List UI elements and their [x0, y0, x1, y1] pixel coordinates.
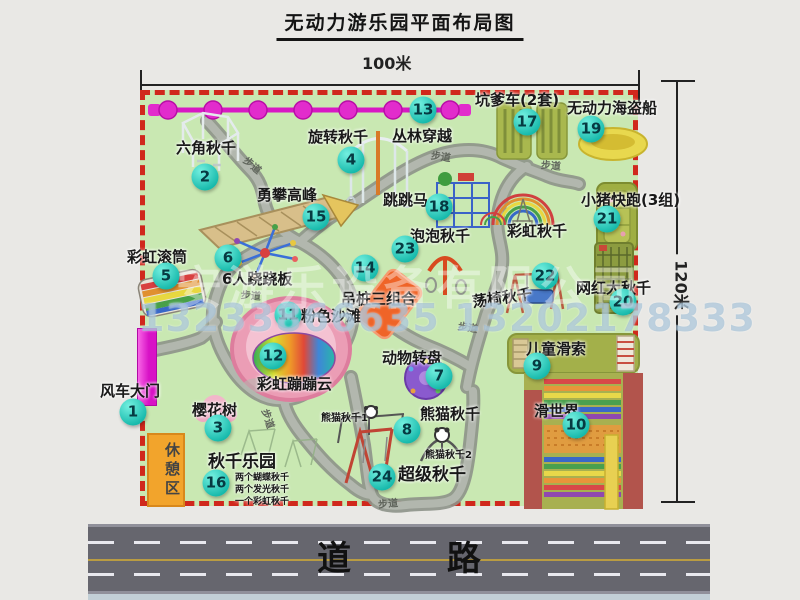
poi-label-16: 秋千乐园 [208, 447, 276, 472]
poi-label: 彩虹秋千 [507, 220, 567, 241]
poi-label-6: 6人跷跷板 [222, 268, 292, 289]
poi-badge-9: 9 [524, 353, 551, 380]
poi-badge-13: 13 [410, 97, 437, 124]
poi-label: 熊猫秋千2 [425, 446, 472, 461]
poi-badge-22: 22 [532, 263, 559, 290]
poi-badge-18: 18 [426, 194, 453, 221]
rest-area: 休憩区 [147, 433, 185, 507]
poi-label-8: 熊猫秋千 [420, 403, 480, 424]
poi-badge-5: 5 [153, 263, 180, 290]
poi-badge-15: 15 [303, 204, 330, 231]
poi-badge-4: 4 [338, 147, 365, 174]
poi-badge-10: 10 [563, 412, 590, 439]
poi-badge-16: 16 [203, 470, 230, 497]
bubble-swing-icon [426, 257, 466, 295]
poi-badge-14: 14 [352, 255, 379, 282]
poi-badge-7: 7 [426, 363, 453, 390]
poi-badge-23: 23 [392, 236, 419, 263]
poi-label-24: 超级秋千 [398, 460, 466, 485]
dimension-tick [661, 80, 695, 82]
footpath-label: 步道 [430, 147, 452, 165]
dimension-height-label: 120米 [671, 254, 695, 315]
poi-badge-2: 2 [192, 164, 219, 191]
poi-badge-11: 11 [275, 302, 302, 329]
poi-badge-19: 19 [578, 116, 605, 143]
footpath-label: 步道 [457, 317, 479, 335]
poi-label-12: 彩虹蹦蹦云 [257, 373, 332, 394]
poi-badge-17: 17 [514, 109, 541, 136]
poi-label-19: 无动力海盗船 [567, 97, 657, 118]
footpath-label: 步道 [377, 494, 398, 511]
footpath-label: 步道 [540, 156, 561, 173]
road: 道 路 [88, 524, 710, 594]
poi-badge-6: 6 [215, 245, 242, 272]
poi-label-15: 勇攀高峰 [257, 184, 317, 205]
poi-label-23: 泡泡秋千 [410, 225, 470, 246]
poi-badge-24: 24 [369, 464, 396, 491]
poi-label-17: 坑爹车(2套) [475, 89, 559, 110]
poi-label-2: 六角秋千 [176, 137, 236, 158]
park-map: 休憩区 1风车大门2六角秋千3樱花树4旋转秋千5彩虹滚筒66人跷跷板7动物转盘8… [140, 90, 638, 506]
poi-label-21: 小猪快跑(3组) [581, 189, 680, 210]
poi-badge-12: 12 [260, 343, 287, 370]
poi-label-4: 旋转秋千 [308, 126, 368, 147]
dimension-tick [661, 501, 695, 503]
dimension-width-label: 100米 [356, 50, 417, 74]
poi-label-13: 丛林穿越 [392, 125, 452, 146]
poi-label-5: 彩虹滚筒 [127, 246, 187, 267]
slide-world-icon [524, 373, 643, 509]
poi-label: 一个彩虹秋千 [235, 494, 289, 507]
poi-label-18: 跳跳马 [383, 189, 428, 210]
poi-label: 熊猫秋千1 [321, 409, 368, 424]
poi-badge-3: 3 [205, 415, 232, 442]
park-plan-image: 无动力游乐园平面布局图 100米 120米 [0, 0, 800, 600]
poi-label-14: 吊桩三组合 [341, 288, 416, 309]
poi-badge-20: 20 [610, 289, 637, 316]
page-title: 无动力游乐园平面布局图 [276, 8, 523, 41]
dimension-line-top [141, 84, 640, 86]
photo-edge-strip [88, 594, 710, 600]
poi-badge-1: 1 [120, 399, 147, 426]
poi-badge-21: 21 [594, 206, 621, 233]
road-label: 道 路 [88, 527, 710, 591]
poi-badge-8: 8 [394, 417, 421, 444]
